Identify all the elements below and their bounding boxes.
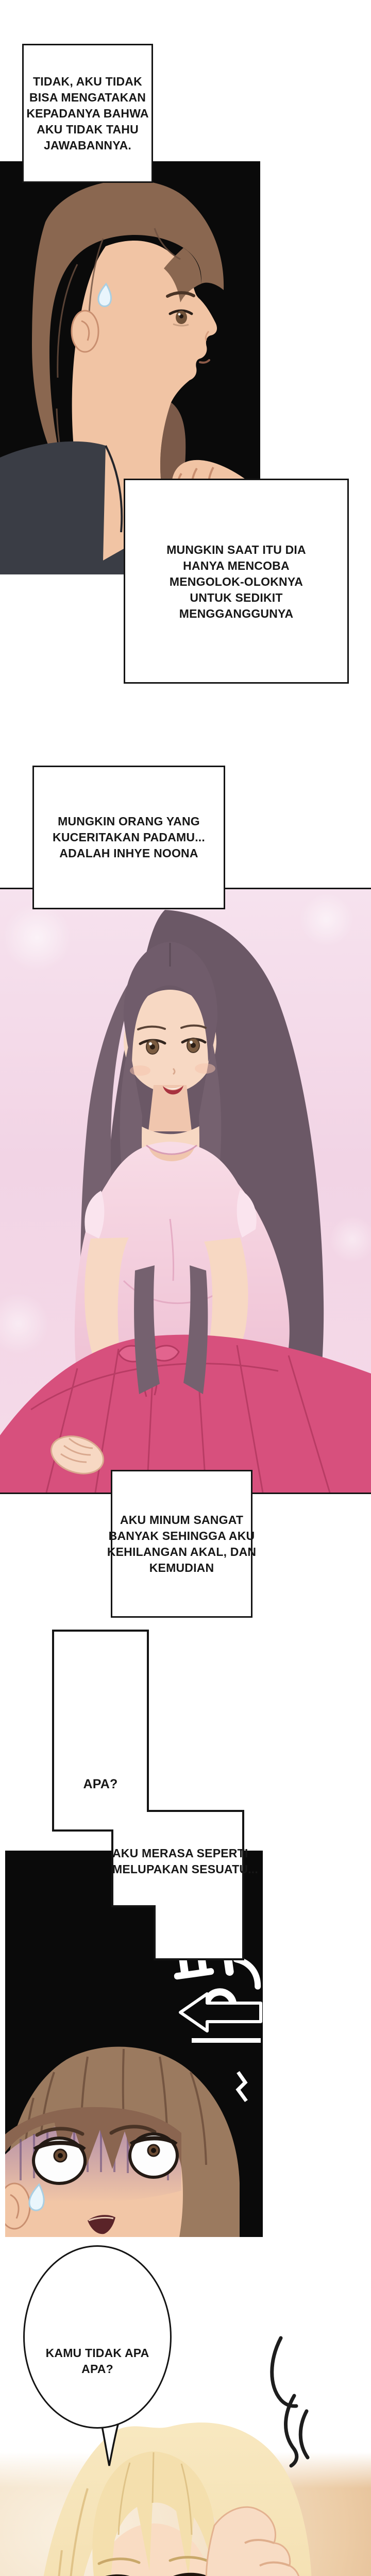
speech-balloon-kamu [23, 2245, 172, 2429]
narration-text-1: TIDAK, AKU TIDAK BISA MENGATAKAN KEPADAN… [26, 74, 148, 154]
narration-box-1: TIDAK, AKU TIDAK BISA MENGATAKAN KEPADAN… [22, 44, 153, 183]
webtoon-page: TIDAK, AKU TIDAK BISA MENGATAKAN KEPADAN… [0, 0, 371, 2576]
narration-text-4: AKU MINUM SANGAT BANYAK SEHINGGA AKU KEH… [107, 1512, 256, 1576]
narration-text-6: AKU MERASA SEPERTI MELUPAKAN SESUATU... [112, 1845, 243, 1877]
narration-box-4: AKU MINUM SANGAT BANYAK SEHINGGA AKU KEH… [111, 1470, 252, 1618]
speech-text-kamu: KAMU TIDAK APA APA? [28, 2345, 166, 2377]
narration-text-2: MUNGKIN SAAT ITU DIA HANYA MENCOBA MENGO… [166, 542, 306, 622]
panel-woman-pink [0, 888, 371, 1494]
staircase-narration-box [49, 1626, 247, 1963]
rustle-sfx-icon [260, 2334, 322, 2468]
woman-pink-art [0, 889, 371, 1493]
narration-text-3: MUNGKIN ORANG YANG KUCERITAKAN PADAMU...… [53, 814, 205, 861]
narration-text-5: APA? [53, 1776, 148, 1792]
narration-box-3: MUNGKIN ORANG YANG KUCERITAKAN PADAMU...… [32, 766, 225, 909]
skirt [0, 1335, 371, 1493]
ear [72, 311, 98, 352]
narration-box-2: MUNGKIN SAAT ITU DIA HANYA MENCOBA MENGO… [124, 479, 349, 684]
